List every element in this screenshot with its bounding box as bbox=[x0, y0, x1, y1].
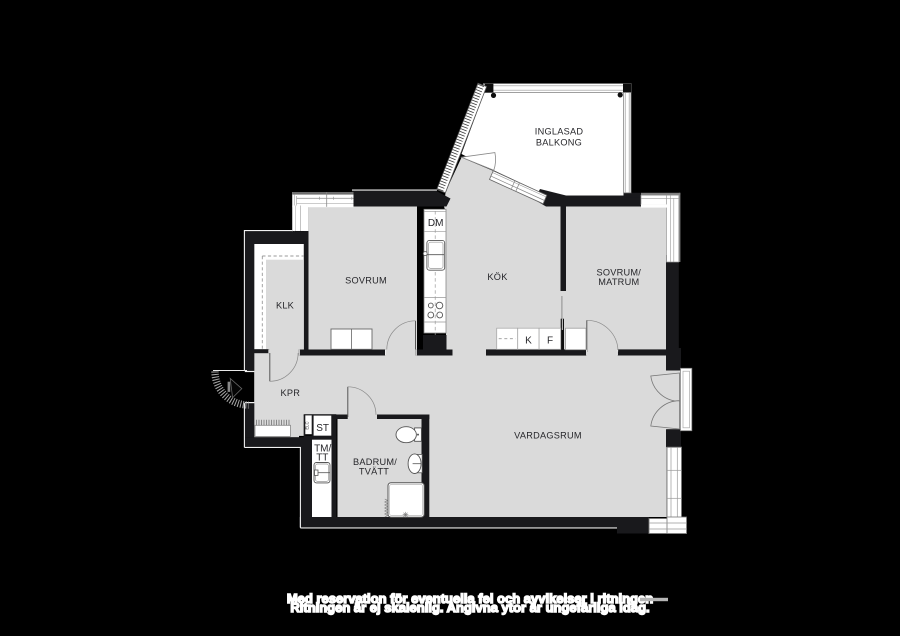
svg-text:Ritningen är ej skalenlig. Ang: Ritningen är ej skalenlig. Angivna ytor … bbox=[290, 600, 649, 615]
svg-text:TVÄTT: TVÄTT bbox=[359, 466, 389, 476]
svg-text:ELC: ELC bbox=[304, 422, 309, 430]
svg-text:BADRUM/: BADRUM/ bbox=[353, 457, 397, 467]
svg-text:ST: ST bbox=[316, 423, 329, 434]
svg-text:SOVRUM/: SOVRUM/ bbox=[596, 267, 641, 277]
svg-text:KÖK: KÖK bbox=[487, 272, 508, 282]
svg-text:DM: DM bbox=[428, 218, 444, 229]
svg-text:MATRUM: MATRUM bbox=[598, 277, 639, 287]
svg-text:K: K bbox=[525, 335, 532, 346]
svg-text:SOVRUM: SOVRUM bbox=[345, 276, 387, 286]
svg-text:KLK: KLK bbox=[276, 300, 295, 310]
svg-text:VARDAGSRUM: VARDAGSRUM bbox=[514, 431, 582, 441]
svg-text:BALKONG: BALKONG bbox=[536, 138, 582, 148]
svg-text:TT: TT bbox=[316, 453, 328, 464]
svg-text:INGLASAD: INGLASAD bbox=[535, 127, 584, 137]
svg-text:KPR: KPR bbox=[280, 388, 300, 398]
svg-text:F: F bbox=[547, 335, 553, 346]
